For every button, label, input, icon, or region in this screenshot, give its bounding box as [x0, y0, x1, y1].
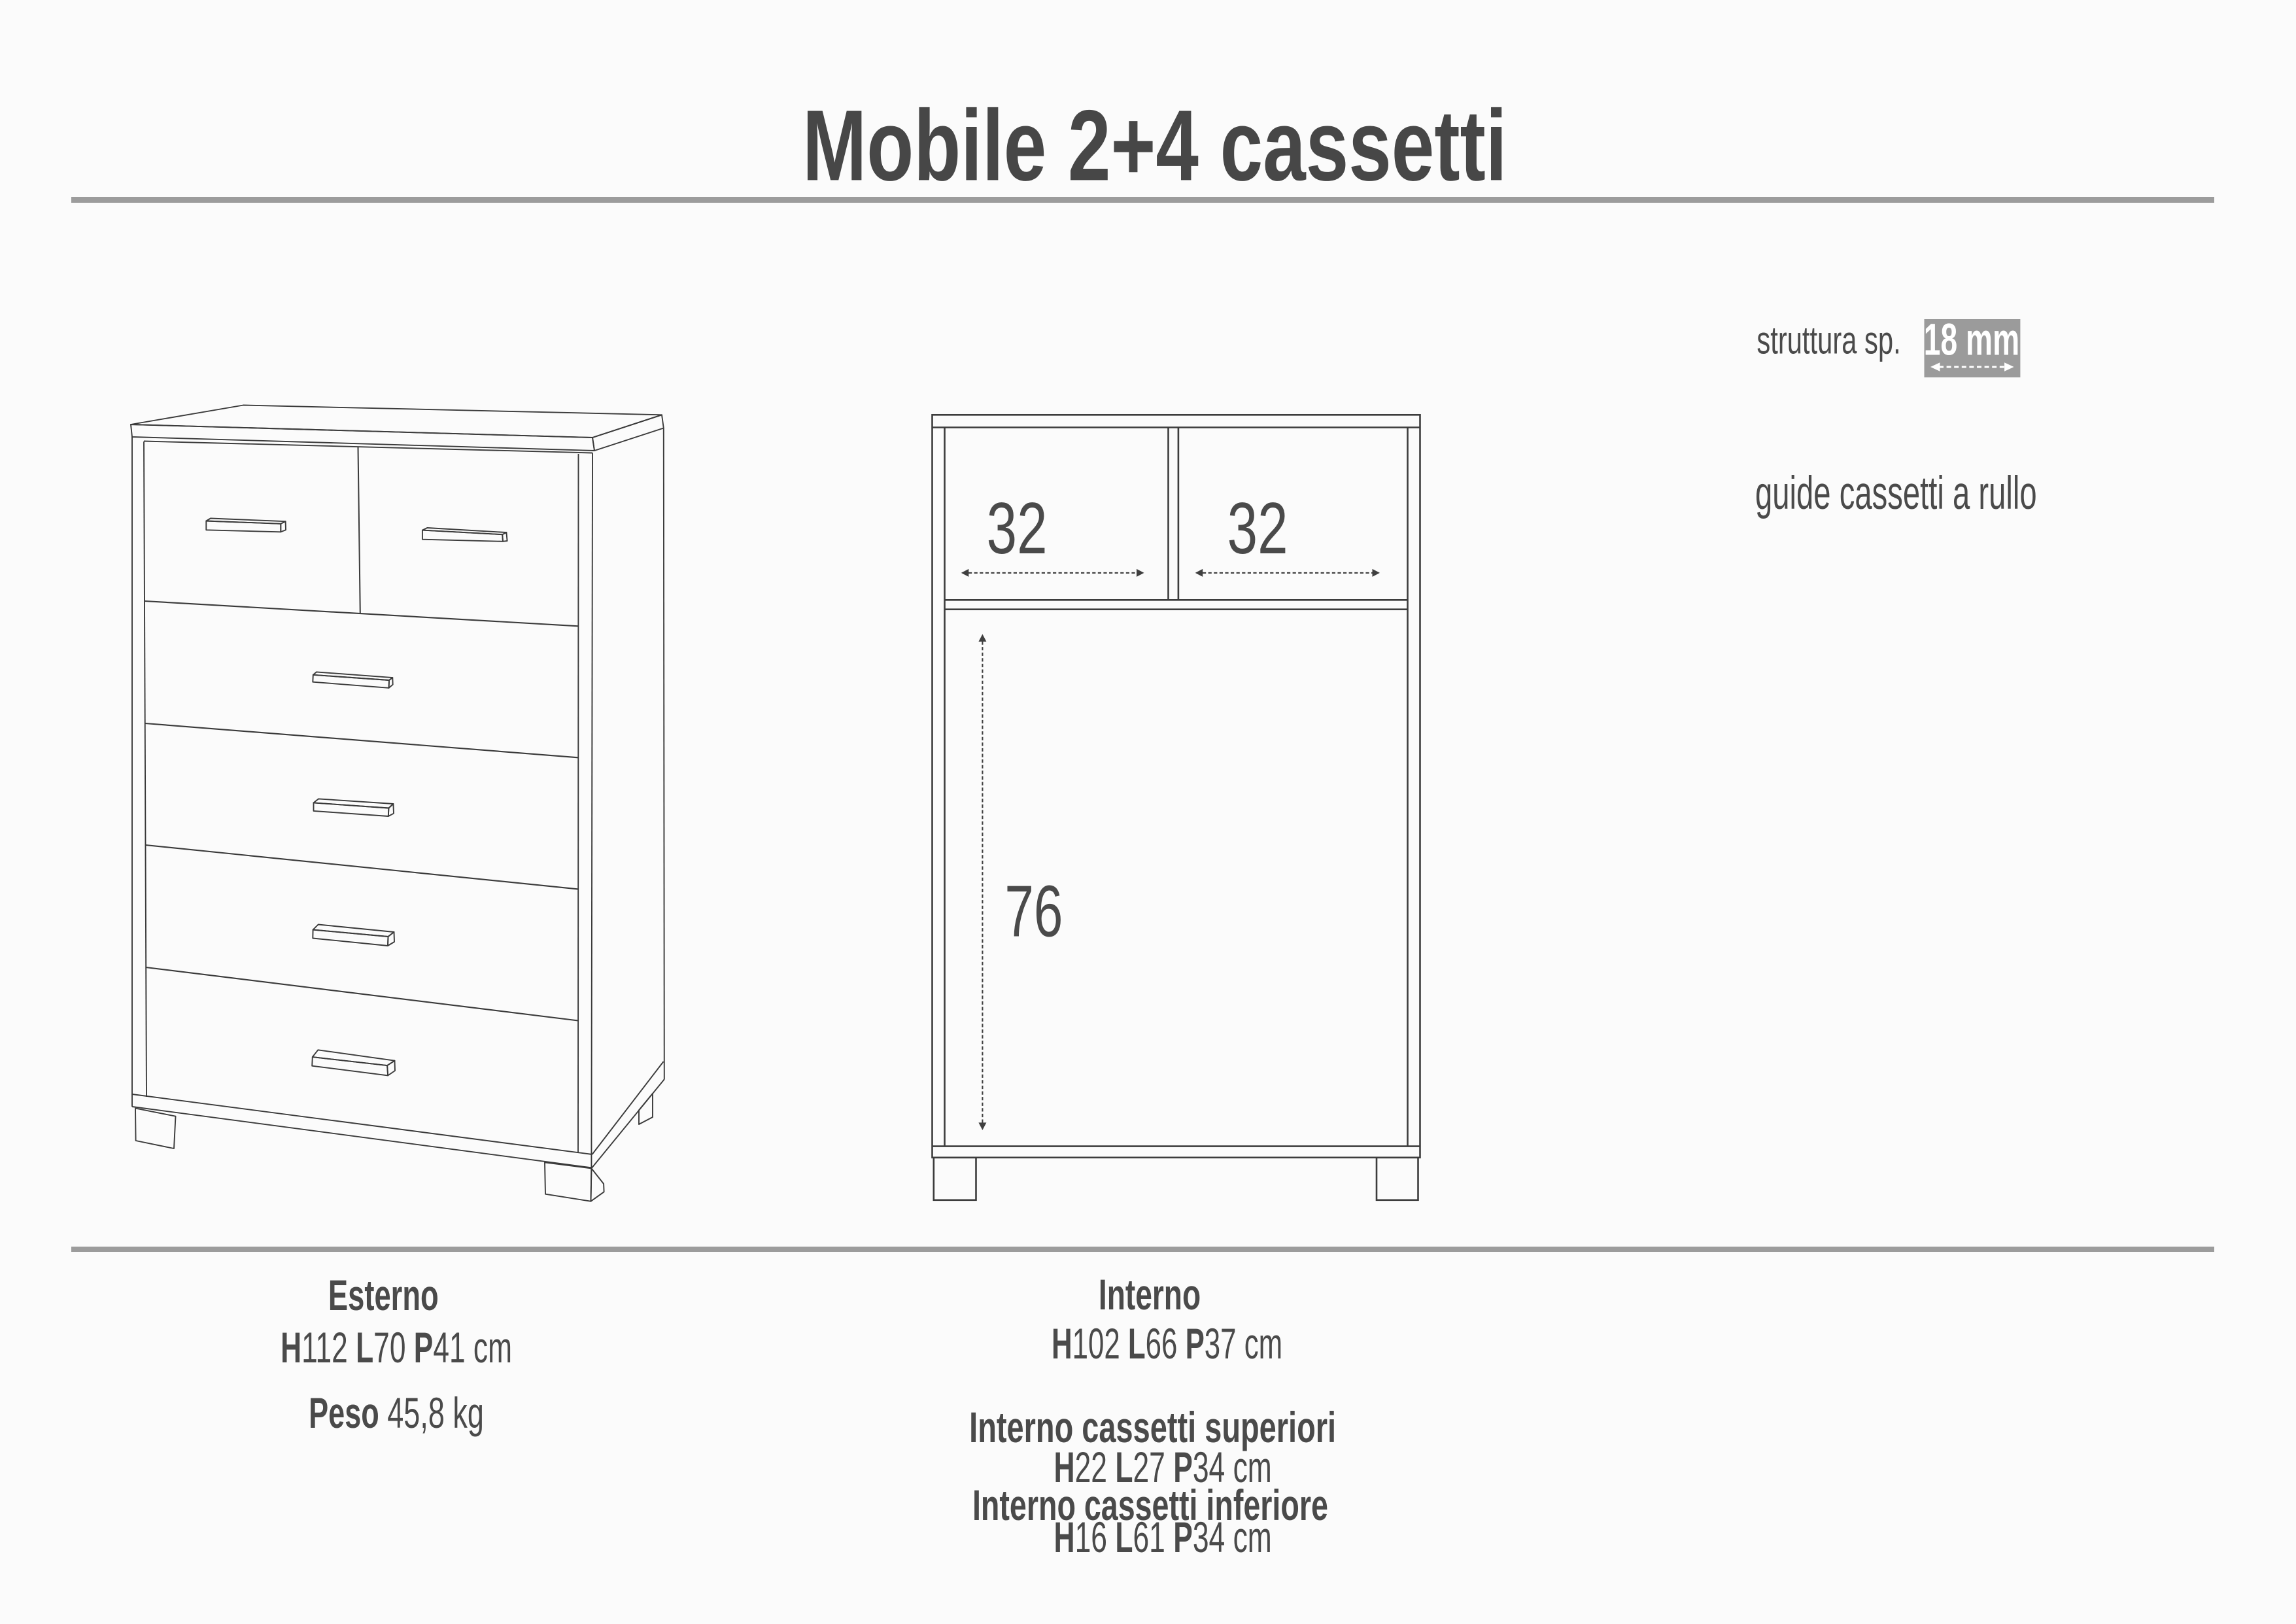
svg-text:H16 L61 P34 cm: H16 L61 P34 cm — [1054, 1513, 1272, 1561]
svg-text:32: 32 — [987, 487, 1048, 568]
svg-text:Esterno: Esterno — [328, 1271, 439, 1319]
svg-text:H112 L70 P41 cm: H112 L70 P41 cm — [281, 1323, 512, 1372]
svg-text:H102 L66 P37 cm: H102 L66 P37 cm — [1052, 1319, 1282, 1368]
svg-text:Peso 45,8 kg: Peso 45,8 kg — [309, 1389, 484, 1437]
svg-text:struttura sp.: struttura sp. — [1756, 319, 1900, 362]
svg-text:76: 76 — [1004, 870, 1063, 952]
svg-text:18 mm: 18 mm — [1924, 315, 2019, 364]
svg-text:guide cassetti a rullo: guide cassetti a rullo — [1755, 466, 2037, 519]
svg-text:Interno: Interno — [1099, 1271, 1201, 1319]
svg-text:Mobile 2+4 cassetti: Mobile 2+4 cassetti — [802, 90, 1507, 202]
svg-text:32: 32 — [1227, 487, 1288, 568]
